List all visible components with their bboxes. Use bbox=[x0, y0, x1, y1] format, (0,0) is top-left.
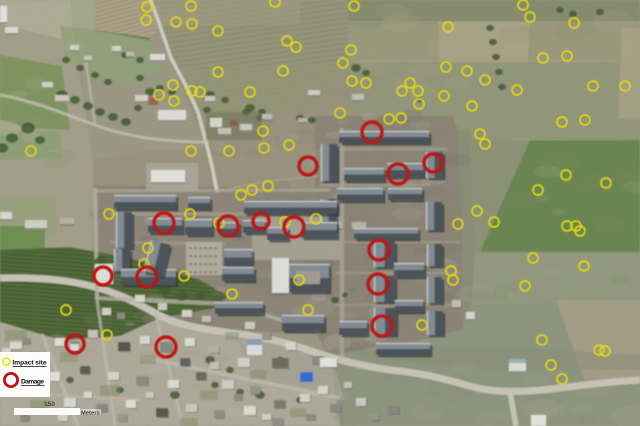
svg-text:150: 150 bbox=[44, 401, 55, 408]
svg-text:Impact site: Impact site bbox=[13, 360, 47, 367]
svg-text:Damage: Damage bbox=[21, 379, 44, 386]
svg-text:Meters: Meters bbox=[81, 411, 100, 417]
